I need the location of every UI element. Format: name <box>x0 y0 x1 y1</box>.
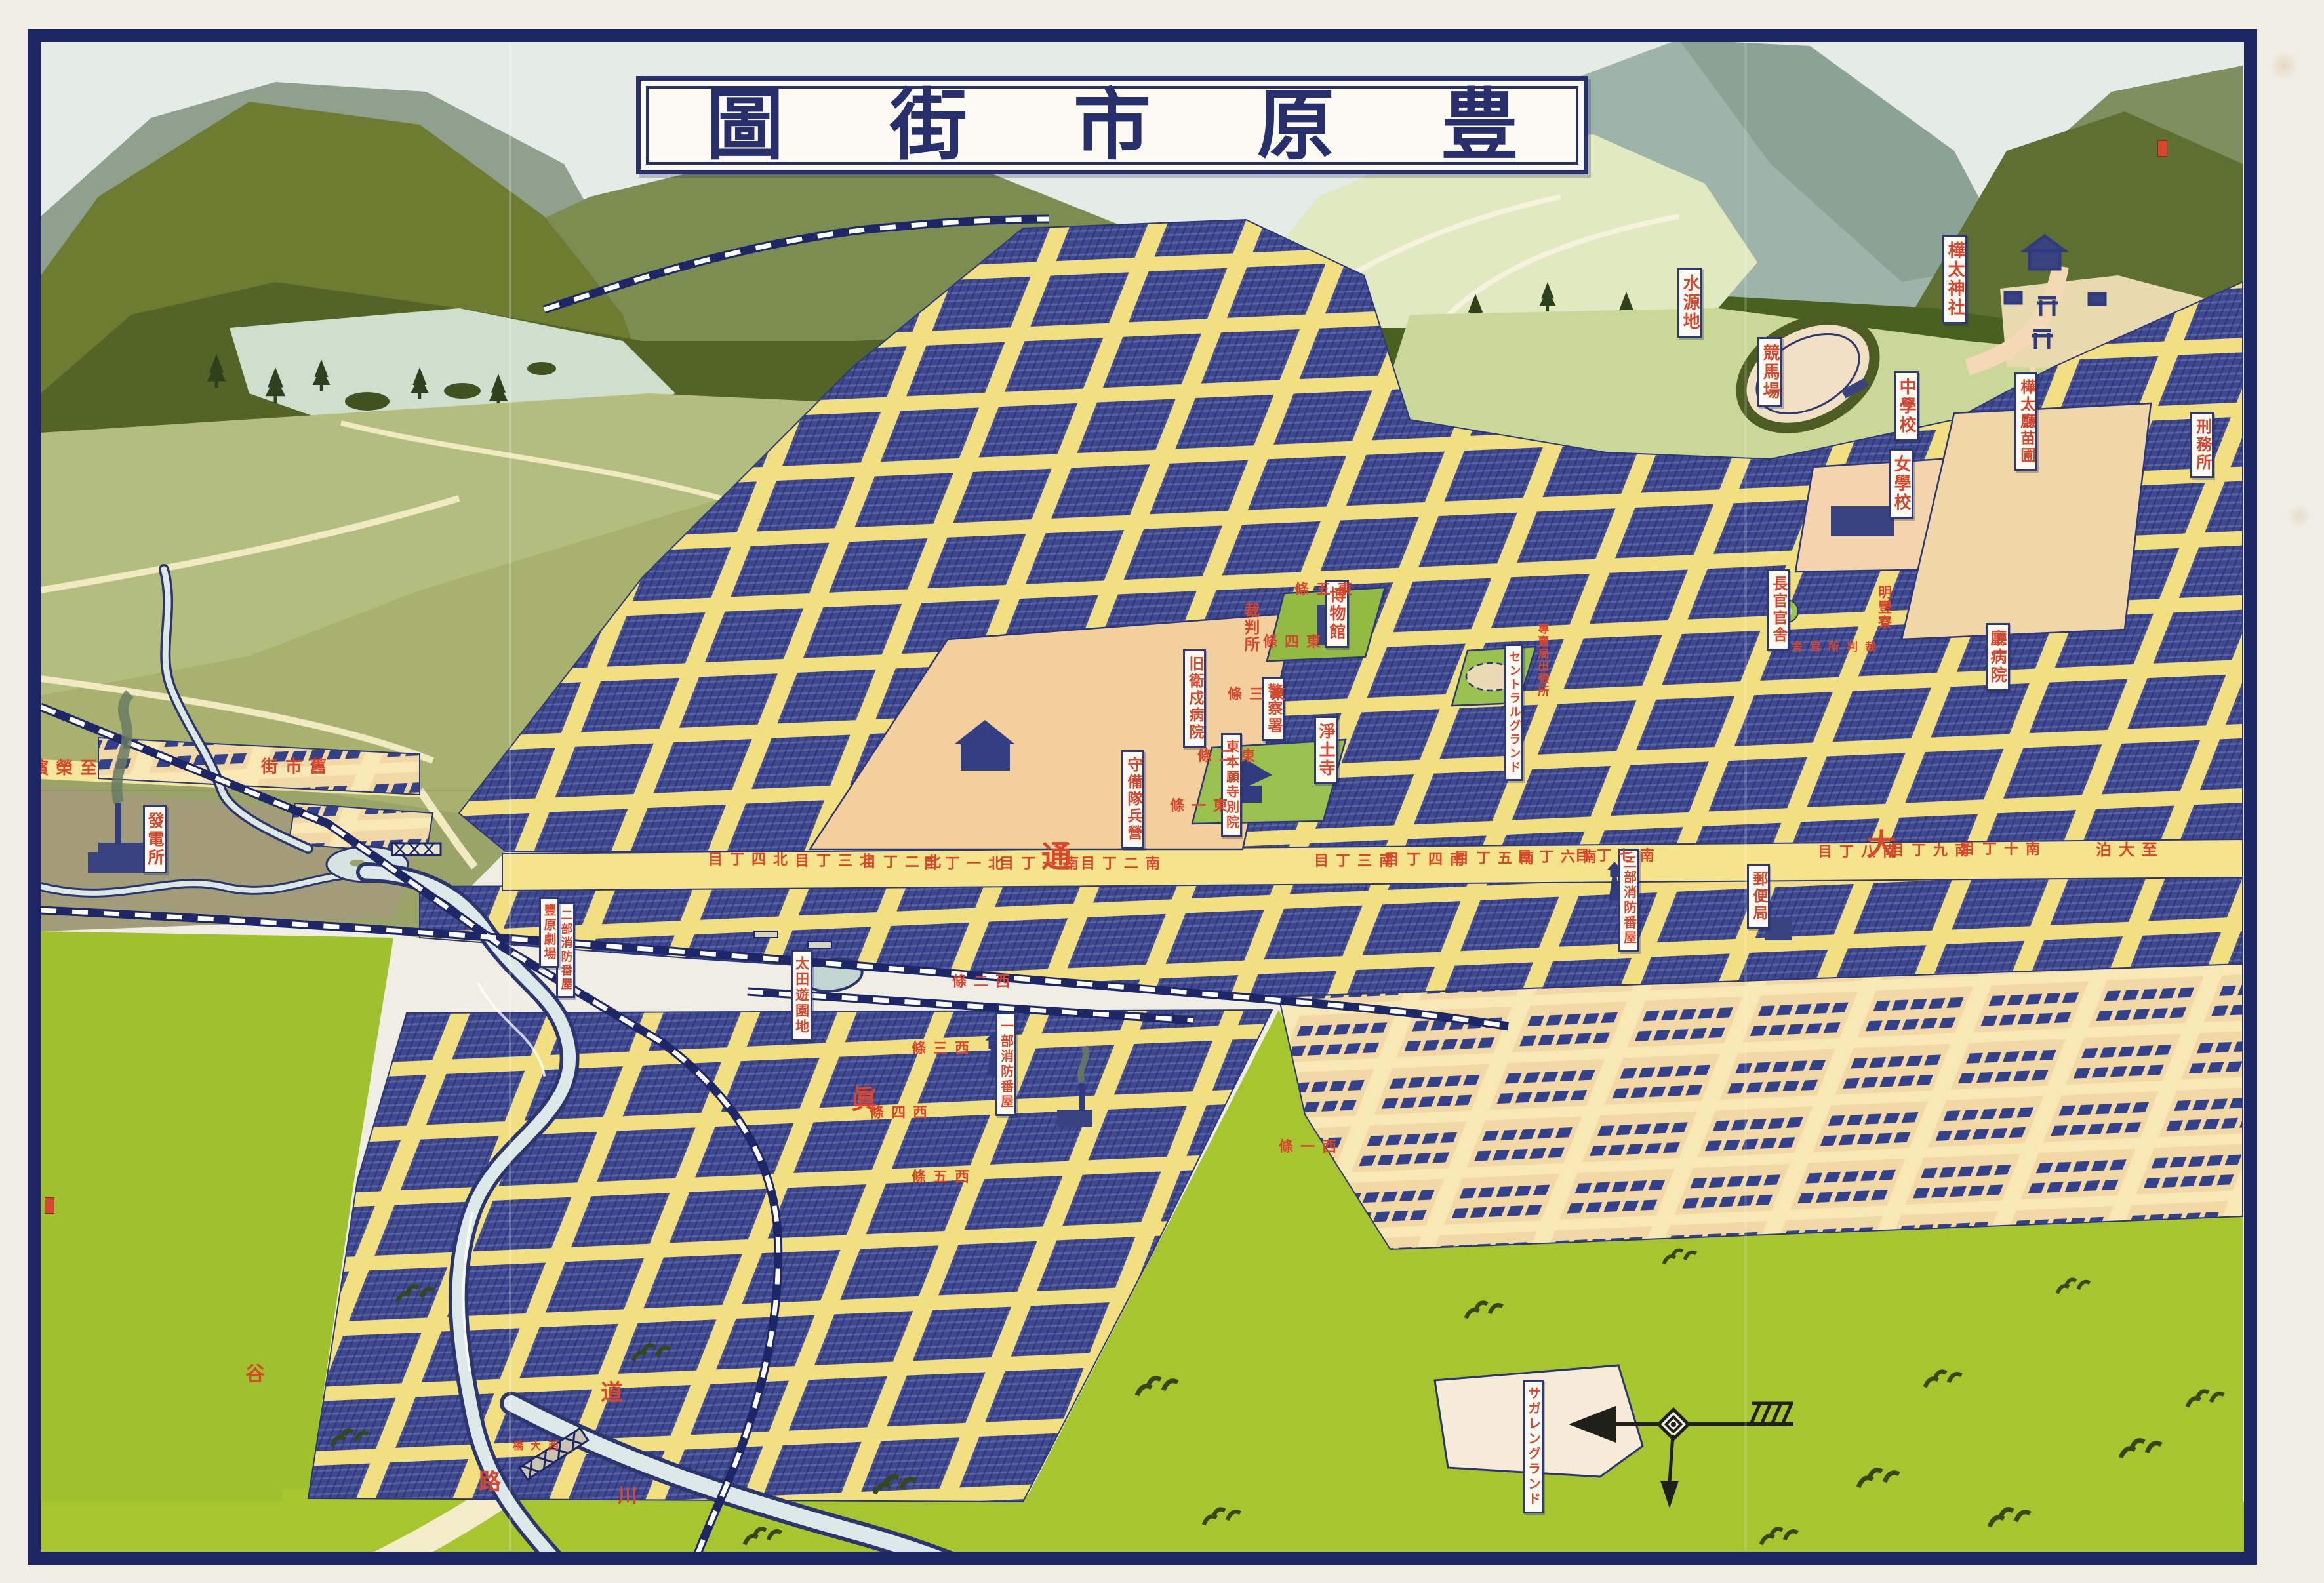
edge-marker-west <box>45 1197 54 1214</box>
hill-marker-3 <box>2157 140 2167 157</box>
label-shubitai-heiei: 守備隊兵營 <box>1121 750 1144 849</box>
label-kyushigai: 街市舊 <box>261 758 334 776</box>
label-nishi-3jo: 條三西 <box>912 1041 976 1057</box>
label-sagaren-ground: サガレングランド <box>1523 1380 1544 1513</box>
title-banner: 圖街市原豊 <box>636 76 1588 174</box>
label-higashi-3jo: 條三東 <box>1228 687 1292 703</box>
label-road-shin: 眞 <box>851 1086 877 1114</box>
label-kita-1chome: 目丁一北 <box>923 856 1010 872</box>
label-toyohara-gekijo: 豐原劇場 <box>539 897 559 968</box>
label-minami-7chome: 目丁七南 <box>1575 849 1662 864</box>
label-minami-2chome: 目丁二南 <box>1081 856 1167 872</box>
label-shi-odomari: 泊大至 <box>2096 842 2165 859</box>
label-cho-byoin: 廳病院 <box>1986 623 2010 691</box>
paper-stain <box>2269 52 2299 79</box>
map-title: 圖街市原豊 <box>600 87 1624 164</box>
label-karafutocho-byoho: 樺太廳苗圃 <box>2014 372 2037 471</box>
label-river-kawa: 川 <box>618 1486 637 1507</box>
label-senbaikyoku: 專賣局出張所 <box>1536 623 1548 698</box>
label-kyu-eiju-byoin: 旧衛戍病院 <box>1183 649 1206 748</box>
label-river-tani: 谷 <box>245 1364 265 1385</box>
map-area: 圖街市原豊 樺太神社水源地競馬場中學校女學校樺太廳苗圃刑務所長官官舎廳病院博物館… <box>41 42 2244 1552</box>
label-jodoji: 淨土寺 <box>1314 716 1338 784</box>
label-chugakko: 中學校 <box>1894 371 1919 441</box>
label-suigenchi: 水源地 <box>1677 268 1702 338</box>
label-odori-tori: 通 <box>1041 841 1072 873</box>
label-higashi-4jo: 條四東 <box>1263 635 1328 651</box>
label-higashi-5jo: 條五東 <box>1294 582 1359 598</box>
label-saibansho: 裁判所 <box>1241 602 1258 653</box>
label-higashi-2jo: 條二東 <box>1197 749 1262 765</box>
label-nishi-4jo: 條四西 <box>870 1106 934 1121</box>
label-shi-sakaehama: 濱榮至 <box>41 759 104 778</box>
label-kita-4chome: 目丁四北 <box>708 852 795 868</box>
label-keimusho: 刑務所 <box>2190 412 2214 478</box>
label-nishi-ohashi: 橋大西 <box>513 1440 566 1451</box>
label-keibajo: 競馬場 <box>1757 337 1782 407</box>
label-road-ro: 路 <box>479 1470 501 1494</box>
label-hatsudensho: 發電所 <box>143 805 167 873</box>
label-minami-10chome: 目丁十南 <box>1961 842 2047 858</box>
label-central-ground: セントラルグランド <box>1504 644 1523 781</box>
label-nishi-5jo: 條五西 <box>912 1170 976 1186</box>
label-yubinkyoku: 郵便局 <box>1747 864 1770 929</box>
paper-stain <box>2287 505 2311 527</box>
label-nishi-1jo: 條一西 <box>1279 1140 1344 1155</box>
label-higashi-1jo: 條一東 <box>1170 799 1235 814</box>
map-sheet: 圖街市原豊 樺太神社水源地競馬場中學校女學校樺太廳苗圃刑務所長官官舎廳病院博物館… <box>0 0 2324 1583</box>
label-shobo-1bu: 一部消防番屋 <box>995 1012 1016 1116</box>
label-chokan-kansha: 長官官舎 <box>1767 569 1790 651</box>
label-saibansho-kansha: 舎官所判裁 <box>1792 641 1883 653</box>
label-ota-yuenchi: 太田遊園地 <box>791 950 812 1041</box>
label-road-michi: 道 <box>601 1381 623 1405</box>
label-karafuto-jinja: 樺太神社 <box>1942 235 1967 324</box>
label-meiho-ryo: 明豐寮 <box>1877 585 1892 630</box>
label-nishi-2jo: 條二西 <box>952 974 1017 990</box>
label-jogakko: 女學校 <box>1889 449 1913 519</box>
labels-layer: 樺太神社水源地競馬場中學校女學校樺太廳苗圃刑務所長官官舎廳病院博物館警察署淨土寺… <box>41 42 2244 1552</box>
